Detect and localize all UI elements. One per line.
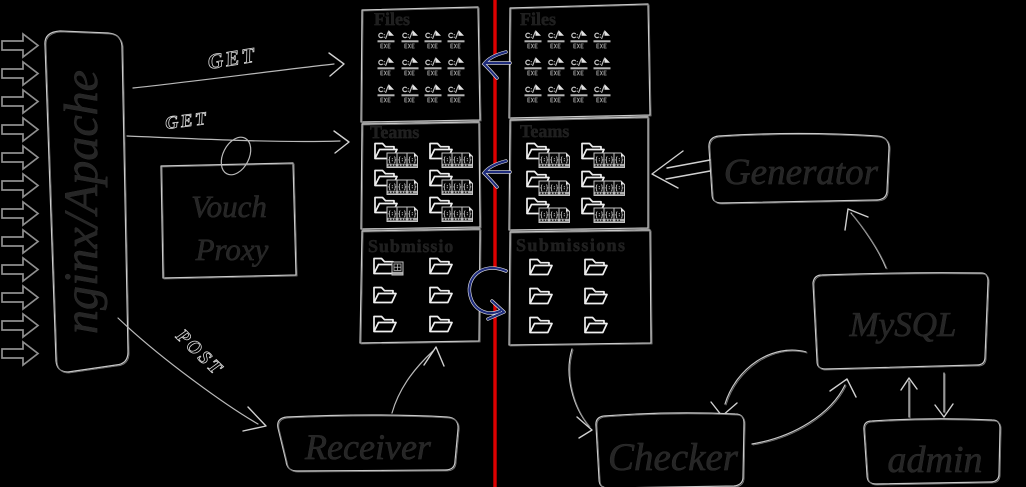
- svg-text:Generator: Generator: [724, 152, 879, 193]
- svg-text:Receiver: Receiver: [304, 427, 432, 467]
- svg-text:admin: admin: [888, 439, 983, 481]
- svg-text:Proxy: Proxy: [195, 232, 269, 267]
- svg-text:Checker: Checker: [608, 436, 739, 479]
- svg-text:Teams: Teams: [520, 121, 569, 141]
- svg-text:Vouch: Vouch: [191, 189, 267, 224]
- svg-text:Submissions: Submissions: [516, 235, 626, 255]
- svg-text:nginx/Apache: nginx/Apache: [55, 70, 108, 334]
- svg-text:Teams: Teams: [370, 122, 419, 142]
- svg-text:Files: Files: [374, 9, 410, 29]
- svg-text:MySQL: MySQL: [849, 305, 957, 344]
- svg-text:Submissio: Submissio: [368, 236, 454, 256]
- svg-text:Files: Files: [520, 9, 556, 29]
